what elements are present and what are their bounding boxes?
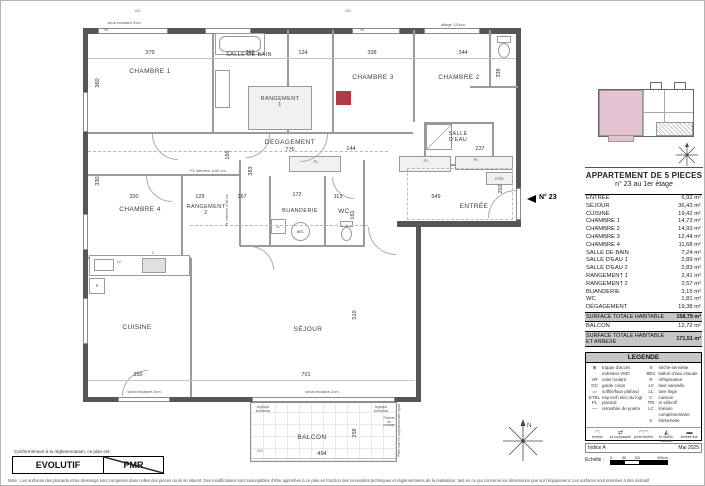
key-plan-unit-highlight bbox=[599, 90, 643, 136]
room-name: BUANDERIE bbox=[586, 289, 620, 297]
dim-chambre4-width: 320 bbox=[118, 194, 150, 200]
vanity bbox=[215, 70, 230, 108]
gc-label: GC bbox=[340, 9, 356, 14]
dim-balcon-width: 494 bbox=[306, 451, 338, 457]
room-label-chambre3: CHAMBRE 3 bbox=[338, 74, 408, 81]
key-plan-line bbox=[643, 90, 644, 136]
room-name: CHAMBRE 3 bbox=[586, 234, 620, 242]
dim-chambre3-width: 338 bbox=[350, 50, 394, 56]
legend-row: ⊞ trappe d'accès entretien VMC bbox=[587, 365, 644, 377]
dim-wc-width: 113 bbox=[324, 194, 352, 200]
legend-symbol: LC bbox=[644, 406, 659, 412]
floor-plan-sheet: ETEL BEC LL R LV C CHAMBRE 1 SALLE DE BA… bbox=[0, 0, 705, 486]
legend-symbol: K bbox=[644, 418, 659, 424]
room-area: 19,42 m² bbox=[678, 211, 701, 219]
legend-window-symbols: ◠ fenêtre ⇄ pf coulissante ◠◠ porte fenê… bbox=[586, 427, 701, 443]
room-area: 2,41 m² bbox=[681, 273, 701, 281]
room-label-chambre4: CHAMBRE 4 bbox=[105, 206, 175, 213]
partition bbox=[413, 30, 415, 122]
key-plan-stub bbox=[674, 82, 686, 90]
room-name: SALLE D'EAU 2 bbox=[586, 265, 628, 273]
window bbox=[83, 214, 88, 250]
legend-box: LEGENDE ⊞ trappe d'accès entretien VMC V… bbox=[585, 352, 702, 441]
fridge: R bbox=[89, 278, 105, 294]
conformity-box: EVOLUTIF PMR bbox=[12, 456, 164, 474]
applique-note: Applique lumineuse bbox=[366, 406, 396, 413]
table-row: SALLE D'EAU 2 2,83 m² bbox=[585, 265, 702, 273]
dim-balcon-depth: 258 bbox=[352, 418, 358, 448]
window-symbol-item: ▬ fenêtre fixe bbox=[679, 430, 701, 443]
technical-duct-marker bbox=[336, 91, 351, 105]
partition bbox=[239, 160, 241, 246]
room-label-sejour: SÉJOUR bbox=[283, 326, 333, 333]
dim-entry-height: 202 bbox=[498, 174, 504, 204]
legal-footnote: Note : Les surfaces des placards et/ou d… bbox=[8, 478, 698, 483]
apartment-title: APPARTEMENT DE 5 PIECES bbox=[585, 171, 703, 180]
room-area: 11,68 m² bbox=[679, 242, 701, 250]
room-name: CHAMBRE 1 bbox=[586, 218, 620, 226]
legend-label: linéaire complémentaire bbox=[659, 406, 701, 418]
dim-chambre2-width: 344 bbox=[440, 50, 486, 56]
washing-machine: LL bbox=[271, 219, 286, 234]
dim-rangement2-width: 129 bbox=[186, 194, 214, 200]
window-symbol-label: fenêtre bbox=[587, 436, 609, 440]
room-label-salle-deau: SALLE D'EAU bbox=[430, 131, 486, 144]
room-label-buanderie: BUANDERIE bbox=[272, 208, 328, 214]
dim-rangement-width: 124 bbox=[288, 50, 318, 56]
legend-title: LEGENDE bbox=[586, 353, 701, 363]
scale-seg bbox=[611, 461, 625, 464]
table-row: CHAMBRE 4 11,68 m² bbox=[585, 242, 702, 250]
dim-sejour-width: 701 bbox=[288, 372, 324, 378]
lv-label: LV bbox=[112, 260, 126, 264]
dim-degagement-width: 776 bbox=[270, 147, 310, 153]
revision-index: Indice A bbox=[588, 444, 606, 452]
legend-symbol: ╌╌ bbox=[587, 406, 602, 412]
balcon-row: BALCON 12,72 m² bbox=[585, 322, 702, 331]
dim-entree-top: 237 bbox=[464, 146, 496, 152]
compass-icon bbox=[674, 142, 700, 168]
scale-tick: 0 bbox=[610, 456, 612, 460]
total-annexe-label: SURFACE TOTALE HABITABLE ET ANNEXE bbox=[586, 333, 664, 345]
gc-label: GC bbox=[252, 449, 268, 454]
table-row: SÉJOUR 36,43 m² bbox=[585, 203, 702, 211]
conformity-note: Conformément à la réglementation, ce pla… bbox=[14, 449, 174, 454]
window-symbol-label: fenêtre fixe bbox=[679, 436, 701, 440]
dim-sejour-height: 510 bbox=[352, 300, 358, 330]
scale-label: Echelle : bbox=[585, 457, 604, 463]
key-plan bbox=[598, 82, 702, 144]
revision-date: Mai 2025 bbox=[678, 444, 699, 452]
pl-label: PL bbox=[418, 159, 434, 164]
table-row: CHAMBRE 3 12,44 m² bbox=[585, 234, 702, 242]
dim-mid-height: 383 bbox=[248, 156, 254, 186]
dim-buanderie-width: 172 bbox=[283, 192, 311, 198]
dim-entree-width: 549 bbox=[420, 194, 452, 200]
room-area: 2,89 m² bbox=[681, 257, 701, 265]
window-symbol-item: ◠ fenêtre bbox=[587, 430, 609, 443]
surface-rows: ENTRÉE 6,92 m² SÉJOUR 36,43 m² CUISINE 1… bbox=[585, 195, 702, 312]
fridge-label: R bbox=[96, 284, 99, 288]
window-symbol-item: ◭ fe oscillo-battante bbox=[656, 430, 678, 443]
door-arc bbox=[250, 246, 274, 270]
revision-row: Indice A Mai 2025 bbox=[585, 443, 702, 453]
room-area: 2,57 m² bbox=[681, 281, 701, 289]
gc-label: GC bbox=[130, 9, 146, 14]
table-row: RANGEMENT 2 2,57 m² bbox=[585, 281, 702, 289]
room-name: WC bbox=[586, 296, 596, 304]
room-area: 1,81 m² bbox=[681, 296, 701, 304]
table-row: CUISINE 19,42 m² bbox=[585, 211, 702, 219]
unit-number: N° 23 bbox=[539, 194, 557, 201]
dim-line bbox=[88, 58, 516, 59]
room-label-degagement: DEGAGEMENT bbox=[250, 139, 330, 146]
apartment-subtitle: n° 23 au 1er étage bbox=[585, 181, 703, 188]
dim-couloir-height: 165 bbox=[225, 140, 231, 170]
room-label-entree: ENTRÉE bbox=[452, 203, 496, 210]
table-row: WC 1,81 m² bbox=[585, 296, 702, 304]
vr-label: VR bbox=[356, 29, 368, 33]
partition bbox=[332, 30, 334, 134]
partition bbox=[269, 176, 271, 246]
key-plan-hatch bbox=[656, 122, 693, 136]
pl-interieur-note: PL intérieur à 60 cm bbox=[183, 169, 233, 174]
apartment-title-block: APPARTEMENT DE 5 PIECES n° 23 au 1er éta… bbox=[585, 171, 703, 188]
surface-table: ENTRÉE 6,92 m² SÉJOUR 36,43 m² CUISINE 1… bbox=[585, 194, 702, 347]
key-plan-line bbox=[643, 112, 693, 113]
seuil-note: seuil encastré 2cm bbox=[118, 390, 170, 395]
legend-row: LC linéaire complémentaire bbox=[644, 406, 701, 418]
room-area: 14,93 m² bbox=[678, 226, 701, 234]
allege-note: allège 120cm bbox=[430, 23, 476, 28]
seuil-note: seuil encastré 2cm bbox=[100, 21, 148, 26]
room-area: 3,15 m² bbox=[681, 289, 701, 297]
dim-chambre1-width: 379 bbox=[120, 50, 180, 56]
dim-pl-width: 144 bbox=[336, 146, 366, 152]
window bbox=[83, 298, 88, 344]
dim-cuisine-width: 350 bbox=[122, 372, 154, 378]
total-habitable-value: 158,79 m² bbox=[676, 314, 701, 320]
pmr-cell-strikethrough: PMR bbox=[104, 457, 163, 473]
dim-chambre2-height: 339 bbox=[496, 58, 502, 88]
key-plan-stub bbox=[650, 82, 662, 90]
evolutif-cell: EVOLUTIF bbox=[13, 457, 104, 473]
legend-label: retombée de poutre bbox=[602, 406, 644, 412]
key-plan-line bbox=[664, 90, 665, 122]
room-label-chambre2: CHAMBRE 2 bbox=[424, 74, 494, 81]
total-habitable-row: SURFACE TOTALE HABITABLE 158,79 m² bbox=[585, 312, 702, 322]
room-name: CHAMBRE 4 bbox=[586, 242, 620, 250]
room-name: DÉGAGEMENT bbox=[586, 304, 627, 312]
total-annexe-row: SURFACE TOTALE HABITABLE ET ANNEXE 171,5… bbox=[585, 331, 702, 347]
partition bbox=[181, 176, 183, 259]
door-arc bbox=[152, 134, 178, 160]
unit-arrow-icon bbox=[527, 195, 536, 203]
applique-note: Applique lumineuse bbox=[248, 406, 278, 413]
scale-bar: 0 50 100 200cm bbox=[610, 460, 668, 465]
parevue-note: Pare-vue en polycarbonate rigide bbox=[397, 399, 401, 461]
room-name: CHAMBRE 2 bbox=[586, 226, 620, 234]
room-name: RANGEMENT 2 bbox=[586, 281, 628, 289]
room-name: SALLE DE BAIN bbox=[586, 250, 629, 258]
key-plan-balcony bbox=[608, 135, 634, 142]
window bbox=[424, 28, 480, 34]
partition bbox=[470, 86, 518, 88]
total-annexe-value: 171,51 m² bbox=[676, 336, 701, 342]
room-area: 36,43 m² bbox=[678, 203, 701, 211]
dim-sdb-width: 262 bbox=[225, 50, 275, 56]
legend-label: kitchenette bbox=[659, 418, 701, 424]
bec-label: BEC bbox=[297, 230, 304, 234]
room-label-rangement1: RANGEMENT 1 bbox=[252, 96, 308, 109]
room-area: 6,92 m² bbox=[681, 195, 701, 203]
scale-tick: 50 bbox=[622, 456, 626, 460]
table-row: CHAMBRE 1 14,73 m² bbox=[585, 218, 702, 226]
table-row: CHAMBRE 2 14,93 m² bbox=[585, 226, 702, 234]
dim-line bbox=[252, 458, 396, 459]
dim-left-top-height: 360 bbox=[95, 68, 101, 98]
entry-door-gap bbox=[516, 188, 521, 220]
toilet-tank bbox=[497, 36, 511, 43]
kitchen-sink bbox=[94, 259, 114, 271]
room-name: CUISINE bbox=[586, 211, 610, 219]
room-area: 12,44 m² bbox=[678, 234, 701, 242]
table-row: BUANDERIE 3,15 m² bbox=[585, 289, 702, 297]
room-name: RANGEMENT 1 bbox=[586, 273, 628, 281]
vr-label: VR bbox=[100, 29, 112, 33]
door-arc bbox=[368, 227, 396, 255]
room-name: SALLE D'EAU 1 bbox=[586, 257, 628, 265]
pl-label: PL bbox=[308, 160, 324, 165]
room-label-balcon: BALCON bbox=[292, 434, 332, 441]
dim-wc-height: 161 bbox=[350, 200, 356, 230]
table-row: DÉGAGEMENT 19,38 m² bbox=[585, 304, 702, 312]
room-label-chambre1: CHAMBRE 1 bbox=[115, 68, 185, 75]
legend-row: K kitchenette bbox=[644, 418, 701, 424]
scale-row: Echelle : 0 50 100 200cm bbox=[585, 455, 702, 465]
seuil-note: seuil encastré 2cm bbox=[296, 390, 348, 395]
window-symbol-label: pf coulissante bbox=[610, 436, 632, 440]
dim-left-mid-height: 330 bbox=[95, 166, 101, 196]
balcon-value: 12,72 m² bbox=[678, 322, 701, 331]
legend-right-column: ≋ sèche-serviette BEC ballon d'eau chaud… bbox=[644, 365, 701, 424]
legend-left-column: ⊞ trappe d'accès entretien VMC VR volet … bbox=[587, 365, 644, 424]
pl-label: PL bbox=[468, 158, 484, 163]
beam-dashed-line bbox=[190, 225, 368, 226]
partition bbox=[363, 160, 365, 246]
window-symbol-label: porte fenêtre bbox=[633, 436, 655, 440]
table-row: SALLE DE BAIN 7,24 m² bbox=[585, 250, 702, 258]
balcon-label: BALCON bbox=[586, 322, 610, 331]
room-name: SÉJOUR bbox=[586, 203, 610, 211]
legend-symbol: ⊞ bbox=[587, 365, 602, 371]
partition bbox=[190, 258, 192, 397]
table-row: RANGEMENT 1 2,41 m² bbox=[585, 273, 702, 281]
svg-text:N: N bbox=[527, 423, 531, 429]
panel-divider bbox=[585, 167, 703, 168]
partition bbox=[212, 30, 214, 134]
room-area: 7,24 m² bbox=[681, 250, 701, 258]
room-area: 2,83 m² bbox=[681, 265, 701, 273]
dim-mid-width: 167 bbox=[228, 194, 256, 200]
scale-tick: 200cm bbox=[657, 456, 668, 460]
toilet-bowl bbox=[498, 43, 510, 58]
table-row: SALLE D'EAU 1 2,89 m² bbox=[585, 257, 702, 265]
window bbox=[83, 92, 88, 132]
legend-label: trappe d'accès entretien VMC bbox=[602, 365, 644, 377]
room-name: ENTRÉE bbox=[586, 195, 610, 203]
window bbox=[118, 397, 170, 402]
total-habitable-label: SURFACE TOTALE HABITABLE bbox=[586, 314, 664, 320]
c-label: C bbox=[146, 251, 160, 255]
scale-seg bbox=[625, 461, 639, 464]
wall-segment bbox=[416, 225, 421, 402]
scale-seg bbox=[639, 461, 667, 464]
window-symbol-item: ◠◠ porte fenêtre bbox=[633, 430, 655, 443]
pl-interieur-note: PL intérieur à 60 cm bbox=[225, 179, 229, 241]
room-area: 19,38 m² bbox=[678, 304, 701, 312]
dim-line bbox=[88, 380, 414, 381]
cooktop bbox=[142, 258, 166, 273]
compass-rose-icon: N bbox=[500, 418, 546, 464]
room-area: 14,73 m² bbox=[678, 218, 701, 226]
scale-tick: 100 bbox=[634, 456, 640, 460]
window-symbol-item: ⇄ pf coulissante bbox=[610, 430, 632, 443]
legend-row: ╌╌ retombée de poutre bbox=[587, 406, 644, 412]
table-row: ENTRÉE 6,92 m² bbox=[585, 195, 702, 203]
room-label-cuisine: CUISINE bbox=[112, 324, 162, 331]
